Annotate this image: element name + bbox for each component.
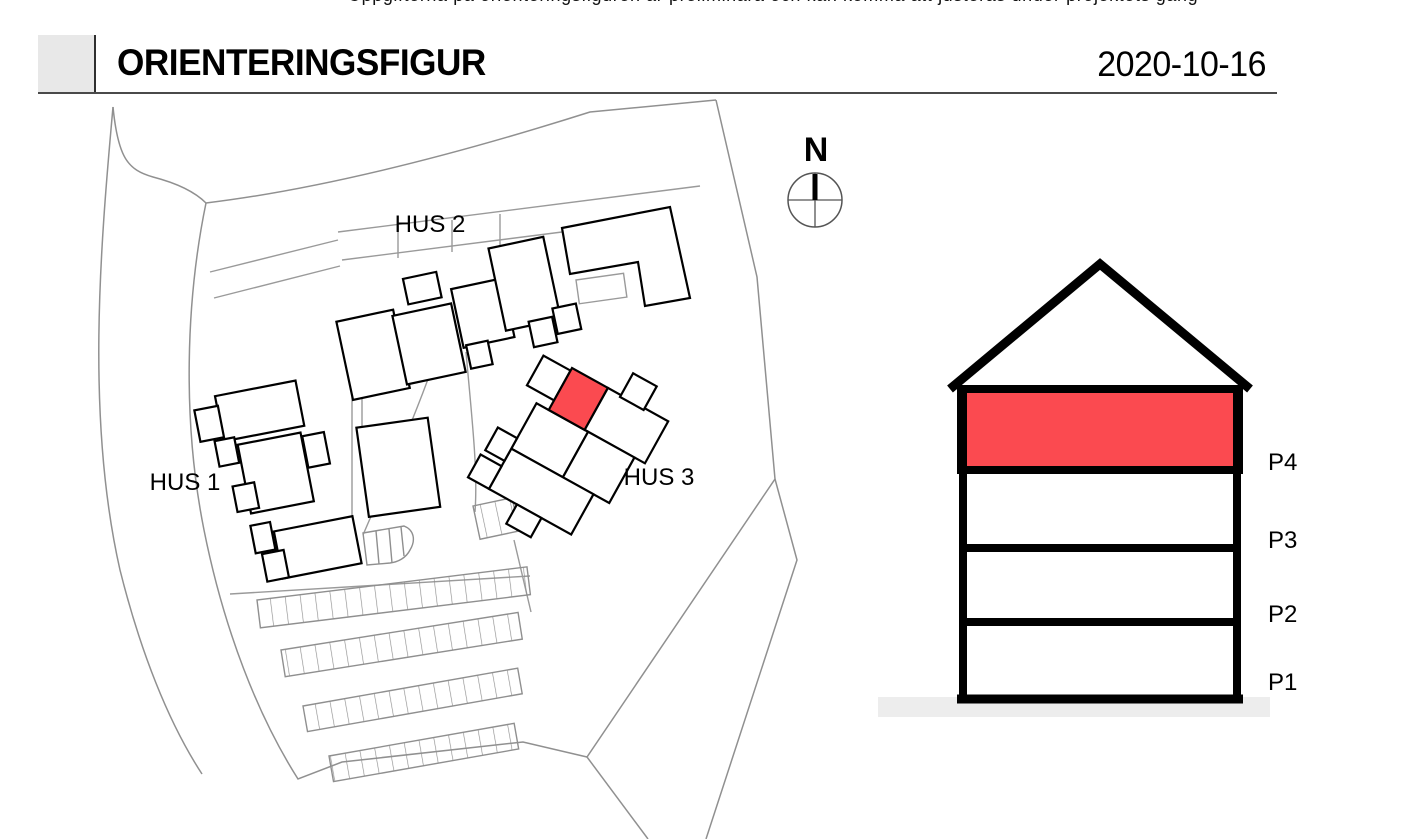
- path-left-connector-1: [210, 240, 338, 272]
- path-funnel-right: [466, 352, 476, 512]
- elevation-figure: P4 P3 P2 P1: [878, 264, 1297, 717]
- hus2-label: HUS 2: [395, 211, 466, 238]
- building: [466, 341, 493, 369]
- building: [215, 437, 240, 466]
- building: [529, 317, 558, 347]
- building: [233, 482, 260, 512]
- page: Uppgifterna på orienteringsfiguren är pr…: [0, 0, 1423, 839]
- roof: [950, 264, 1250, 389]
- site-plan: HUS 2 HUS 1 HUS 3 N: [99, 100, 842, 839]
- boundary-line-top: [113, 100, 716, 203]
- central-building: [356, 418, 440, 517]
- building: [356, 418, 440, 517]
- building: [215, 381, 304, 442]
- building: [302, 432, 330, 468]
- compass-icon: N: [788, 131, 842, 227]
- floor-label-p3: P3: [1268, 527, 1297, 554]
- parking-wedge: [363, 526, 413, 565]
- building: [194, 406, 224, 442]
- parking-wedge-dividers: [376, 527, 404, 564]
- boundary-line-left-outer: [99, 107, 202, 774]
- compass-north-label: N: [804, 131, 829, 169]
- floor-p4-band: [961, 389, 1239, 470]
- parking-row: [281, 612, 522, 676]
- road-line-bottom-right-2: [706, 479, 797, 839]
- hus1-label: HUS 1: [150, 469, 221, 496]
- building: [262, 550, 289, 582]
- floor-label-p2: P2: [1268, 601, 1297, 628]
- road-line-bottom-right-1: [587, 757, 648, 839]
- figure-canvas: HUS 2 HUS 1 HUS 3 N P: [0, 0, 1423, 839]
- floor-label-p1: P1: [1268, 669, 1297, 696]
- building: [552, 304, 581, 334]
- path-left-connector-2: [214, 266, 340, 298]
- floor-label-p4: P4: [1268, 449, 1297, 476]
- building: [250, 522, 275, 553]
- parking-row: [329, 723, 519, 781]
- building: [392, 303, 465, 384]
- building: [403, 272, 442, 305]
- parking-row: [303, 668, 522, 731]
- hus2-courtyard: [576, 273, 627, 303]
- hus3-label: HUS 3: [624, 464, 695, 491]
